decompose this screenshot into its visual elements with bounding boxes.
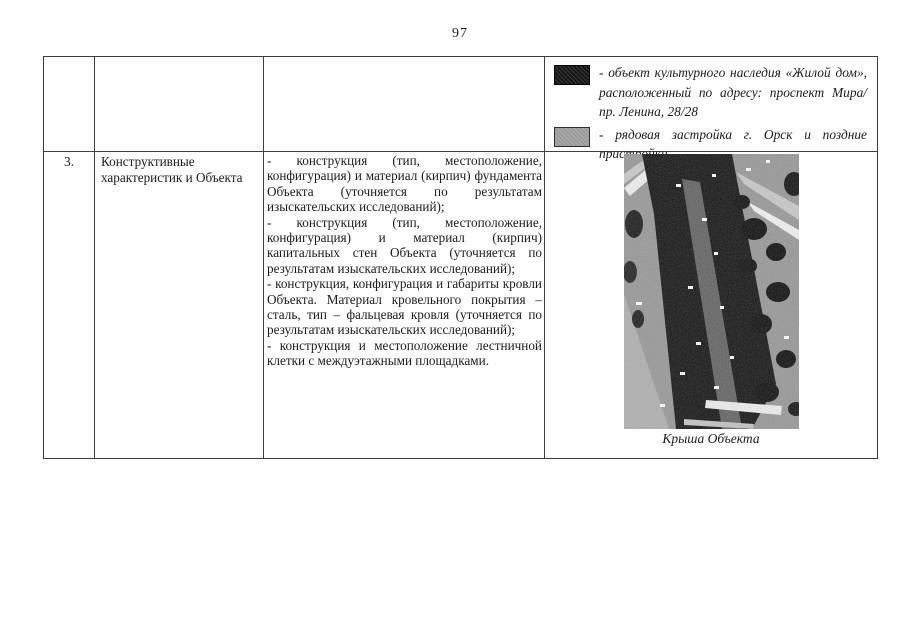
column-divider-1 bbox=[94, 57, 95, 458]
legend-item-heritage: - объект культурного наследия «Жилой дом… bbox=[545, 63, 877, 122]
heritage-object-swatch-icon bbox=[554, 65, 590, 85]
aerial-photo bbox=[624, 154, 799, 429]
row-category: Конструктивные характеристик и Объекта bbox=[95, 151, 263, 186]
description-paragraph: - конструкция (тип, местоположение, конф… bbox=[267, 215, 542, 277]
aerial-photo-image bbox=[624, 154, 799, 429]
legend-item-label: - объект культурного наследия «Жилой дом… bbox=[599, 63, 867, 122]
surrounding-buildings-swatch-icon bbox=[554, 127, 590, 147]
legend-cell: - объект культурного наследия «Жилой дом… bbox=[545, 57, 877, 151]
description-paragraph: - конструкция, конфигурация и габариты к… bbox=[267, 276, 542, 338]
description-paragraph: - конструкция (тип, местоположение, конф… bbox=[267, 153, 542, 215]
description-paragraph: - конструкция и местоположение лестнично… bbox=[267, 338, 542, 369]
document-page: 97 - объект культурного наследия «Жилой … bbox=[0, 0, 905, 640]
document-table: - объект культурного наследия «Жилой дом… bbox=[43, 56, 878, 459]
photo-caption: Крыша Объекта bbox=[545, 431, 877, 447]
row-index: 3. bbox=[44, 151, 94, 170]
page-number: 97 bbox=[452, 26, 468, 42]
row-description: - конструкция (тип, местоположение, конф… bbox=[264, 151, 545, 369]
